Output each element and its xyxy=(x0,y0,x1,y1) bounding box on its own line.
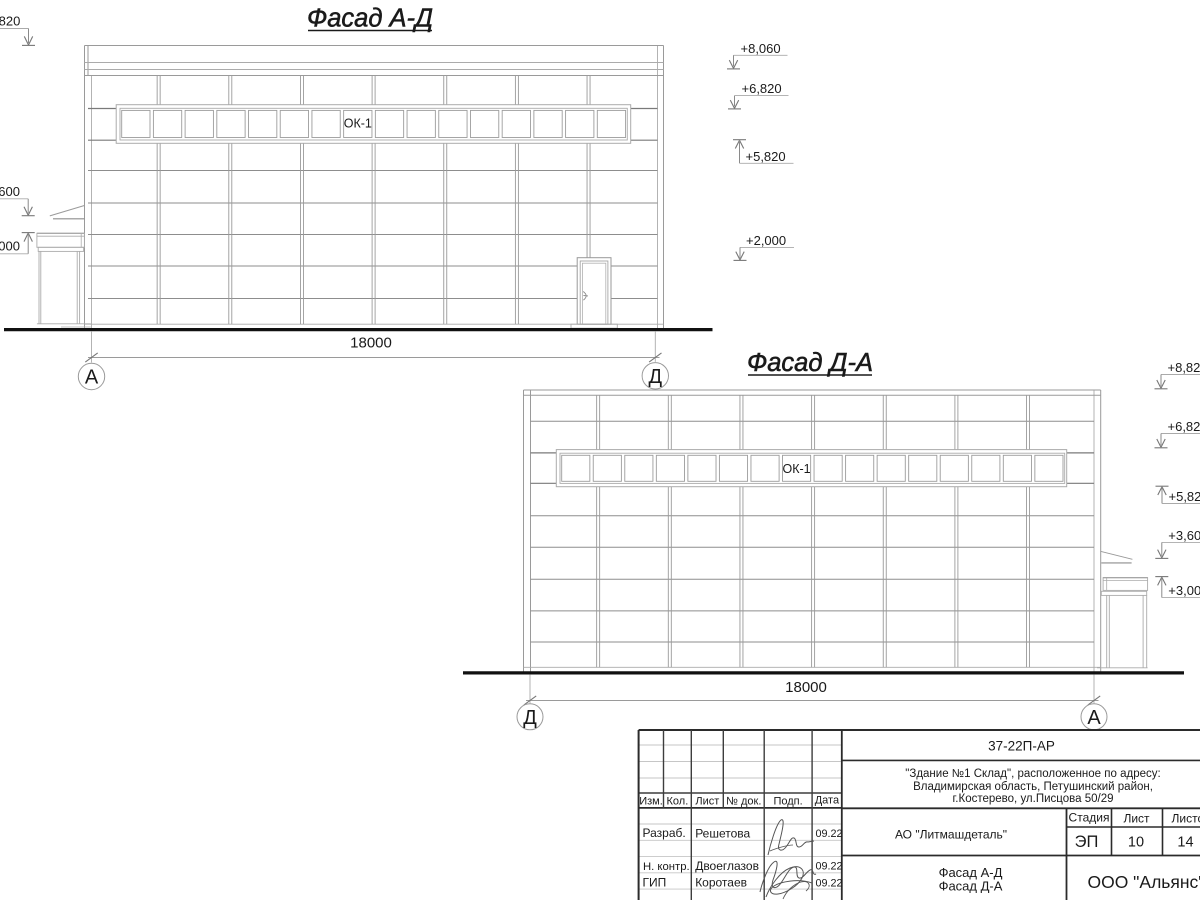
svg-text:ООО "Альянс": ООО "Альянс" xyxy=(1087,872,1200,892)
svg-text:Д: Д xyxy=(649,366,663,388)
svg-text:Разраб.: Разраб. xyxy=(643,826,686,840)
svg-text:Н. контр.: Н. контр. xyxy=(643,861,690,873)
svg-text:Лист: Лист xyxy=(695,795,719,807)
svg-text:09.22: 09.22 xyxy=(816,877,843,889)
svg-text:18000: 18000 xyxy=(350,335,392,352)
svg-text:Коротаев: Коротаев xyxy=(695,875,747,889)
svg-text:Фасад Д-А: Фасад Д-А xyxy=(747,349,873,377)
svg-text:+3,600: +3,600 xyxy=(0,184,20,199)
svg-text:+6,820: +6,820 xyxy=(742,81,782,96)
svg-text:+3,000: +3,000 xyxy=(1168,583,1200,598)
svg-text:АО "Литмашдеталь": АО "Литмашдеталь" xyxy=(895,828,1007,842)
svg-text:ОК-1: ОК-1 xyxy=(783,462,811,476)
svg-text:09.22: 09.22 xyxy=(816,860,843,872)
svg-text:Изм.: Изм. xyxy=(639,795,663,807)
svg-text:г.Костерево, ул.Писцова 50/29: г.Костерево, ул.Писцова 50/29 xyxy=(953,793,1114,805)
svg-text:"Здание №1 Склад", расположенн: "Здание №1 Склад", расположенное по адре… xyxy=(905,768,1160,780)
svg-text:+5,820: +5,820 xyxy=(1169,489,1200,504)
svg-text:09.22: 09.22 xyxy=(816,828,843,840)
svg-text:№ док.: № док. xyxy=(726,795,761,807)
svg-text:+5,820: +5,820 xyxy=(746,149,786,164)
svg-text:Решетова: Решетова xyxy=(695,827,750,841)
svg-text:Стадия: Стадия xyxy=(1069,811,1110,825)
svg-text:37-22П-АР: 37-22П-АР xyxy=(988,739,1055,754)
svg-text:+3,600: +3,600 xyxy=(1168,528,1200,543)
svg-text:Кол.: Кол. xyxy=(667,795,689,807)
svg-text:Лист: Лист xyxy=(1123,812,1150,826)
svg-text:Фасад А-Д: Фасад А-Д xyxy=(307,5,433,33)
svg-text:+6,820: +6,820 xyxy=(1168,419,1200,434)
svg-text:Листов: Листов xyxy=(1172,812,1200,826)
svg-text:+8,060: +8,060 xyxy=(741,41,781,56)
svg-text:Д: Д xyxy=(523,707,537,729)
svg-text:+3,000: +3,000 xyxy=(0,239,20,254)
svg-text:+8,820: +8,820 xyxy=(1168,360,1200,375)
svg-text:ГИП: ГИП xyxy=(643,875,667,889)
svg-text:ЭП: ЭП xyxy=(1075,833,1099,851)
svg-text:А: А xyxy=(85,367,99,389)
svg-text:+8,820: +8,820 xyxy=(0,14,20,29)
svg-text:10: 10 xyxy=(1128,835,1144,851)
svg-text:Двоеглазов: Двоеглазов xyxy=(695,859,759,873)
svg-text:Подп.: Подп. xyxy=(773,795,802,807)
svg-text:Владимирская область, Петушинс: Владимирская область, Петушинский район, xyxy=(913,781,1153,793)
svg-text:+2,000: +2,000 xyxy=(746,233,786,248)
svg-text:ОК-1: ОК-1 xyxy=(344,117,372,131)
svg-text:А: А xyxy=(1087,707,1101,729)
svg-text:Фасад Д-А: Фасад Д-А xyxy=(939,878,1003,893)
svg-text:14: 14 xyxy=(1177,835,1193,851)
svg-text:Дата: Дата xyxy=(815,794,840,806)
svg-text:18000: 18000 xyxy=(785,679,827,696)
